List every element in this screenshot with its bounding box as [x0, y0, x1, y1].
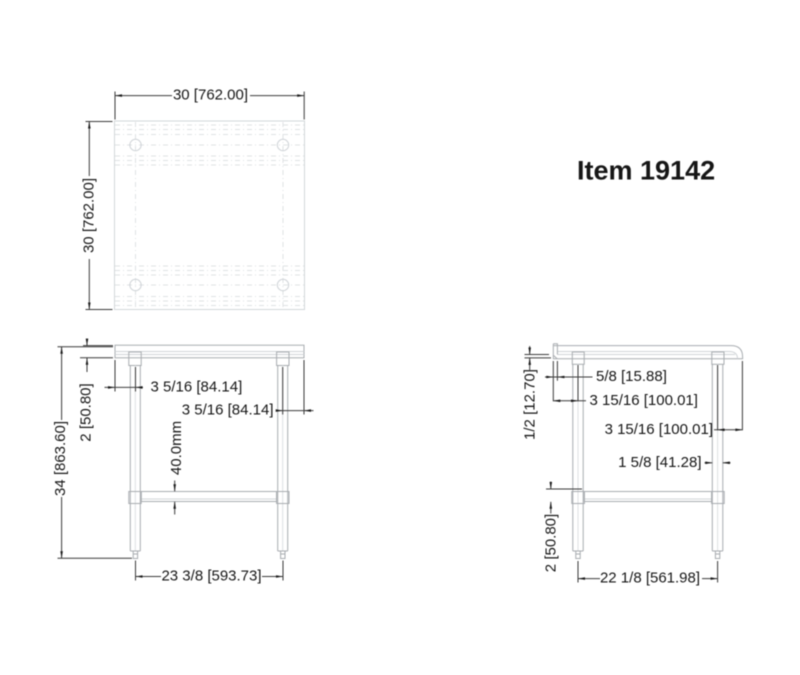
svg-text:30 [762.00]: 30 [762.00]: [173, 87, 248, 104]
svg-text:1 5/8 [41.28]: 1 5/8 [41.28]: [618, 454, 701, 471]
svg-text:3 15/16 [100.01]: 3 15/16 [100.01]: [605, 421, 713, 438]
svg-text:3 15/16 [100.01]: 3 15/16 [100.01]: [590, 392, 698, 409]
svg-text:23 3/8 [593.73]: 23 3/8 [593.73]: [161, 568, 261, 585]
svg-text:5/8 [15.88]: 5/8 [15.88]: [596, 368, 667, 385]
svg-text:Item 19142: Item 19142: [577, 156, 715, 186]
svg-text:22 1/8 [561.98]: 22 1/8 [561.98]: [600, 570, 700, 587]
svg-text:3 5/16 [84.14]: 3 5/16 [84.14]: [182, 402, 274, 419]
svg-text:2 [50.80]: 2 [50.80]: [543, 514, 560, 572]
svg-text:30 [762.00]: 30 [762.00]: [81, 178, 98, 253]
svg-text:40.0mm: 40.0mm: [168, 421, 185, 475]
svg-text:2 [50.80]: 2 [50.80]: [78, 383, 95, 441]
svg-text:3 5/16 [84.14]: 3 5/16 [84.14]: [151, 378, 243, 395]
svg-text:34 [863.60]: 34 [863.60]: [52, 421, 69, 496]
svg-text:1/2 [12.70]: 1/2 [12.70]: [522, 369, 539, 440]
